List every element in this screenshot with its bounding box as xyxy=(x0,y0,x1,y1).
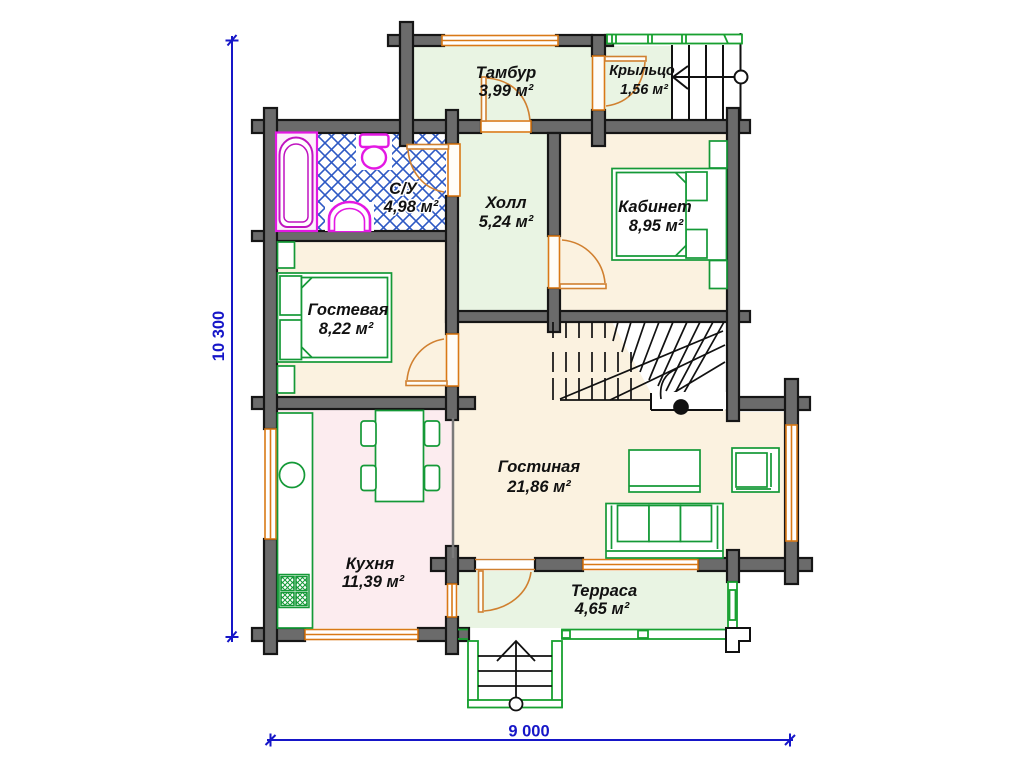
svg-text:Терраса: Терраса xyxy=(571,582,637,600)
svg-text:4,65 м²: 4,65 м² xyxy=(574,600,630,618)
svg-text:4,98 м²: 4,98 м² xyxy=(383,198,439,216)
svg-text:9 000: 9 000 xyxy=(508,723,549,741)
svg-text:21,86 м²: 21,86 м² xyxy=(506,478,571,496)
svg-text:Крыльцо: Крыльцо xyxy=(609,63,675,79)
svg-text:10 300: 10 300 xyxy=(210,311,228,361)
svg-text:11,39 м²: 11,39 м² xyxy=(342,573,405,591)
svg-text:Кабинет: Кабинет xyxy=(618,198,691,216)
svg-text:Холл: Холл xyxy=(485,194,527,212)
svg-text:Кухня: Кухня xyxy=(346,555,394,573)
svg-text:Гостевая: Гостевая xyxy=(308,301,389,319)
svg-text:8,22 м²: 8,22 м² xyxy=(319,320,374,338)
svg-text:5,24 м²: 5,24 м² xyxy=(479,213,534,231)
svg-text:Гостиная: Гостиная xyxy=(498,458,580,476)
svg-text:3,99 м²: 3,99 м² xyxy=(479,82,534,100)
svg-text:Тамбур: Тамбур xyxy=(476,64,537,82)
svg-text:1,56 м²: 1,56 м² xyxy=(620,82,669,98)
svg-text:С/У: С/У xyxy=(389,180,419,198)
svg-text:8,95 м²: 8,95 м² xyxy=(629,217,684,235)
